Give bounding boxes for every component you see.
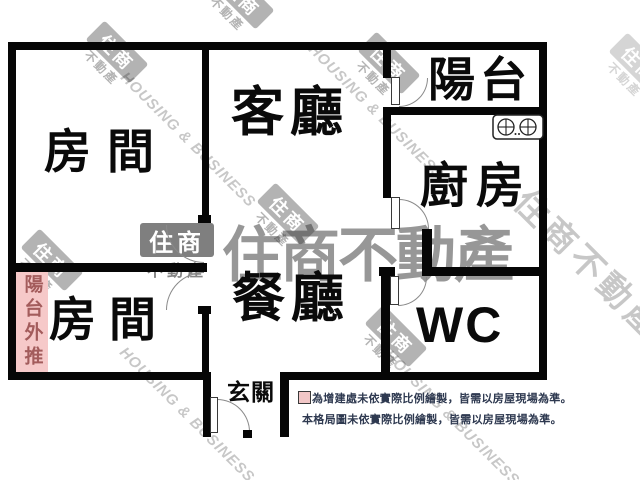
legend-annex-square [298, 391, 311, 404]
brand-logo-box: 住商 [257, 183, 320, 246]
wall-entry-right [280, 372, 289, 437]
brand-logo-subtext: 不動產 [597, 52, 640, 108]
note-layout: 本格局圖未依實際比例繪製，皆需以房屋現場為準。 [302, 411, 562, 427]
wall-outer-right [539, 42, 547, 380]
room-label-dining-room: 餐廳 [232, 272, 350, 325]
room-label-living-room: 客廳 [231, 86, 349, 139]
room-label-bedroom-top: 房間 [44, 128, 170, 175]
wall-outer-left [8, 42, 16, 380]
wall-outer-bottom-right [280, 372, 547, 380]
balcony-extension-strip: 陽台外推 [16, 272, 48, 372]
brand-logo-box: 住商 [609, 33, 640, 96]
brand-diamond-watermark: 住商 不動產 [200, 0, 275, 41]
wall-living-kitchen [383, 107, 391, 198]
room-label-entry: 玄關 [227, 381, 275, 404]
brand-logo-subtext: 不動產 [245, 202, 301, 258]
brand-logo-box: 住商 [86, 21, 149, 84]
brand-diamond-watermark: 住商 不動產 [245, 183, 320, 258]
wall-wc-top-right [428, 267, 547, 276]
wall-outer-bottom-left [8, 372, 211, 380]
door-leaf-kitchen [391, 197, 400, 229]
door-arc-balcony [399, 78, 428, 107]
door-jamb-entry [243, 430, 252, 438]
wall-bedroom2-dining [202, 310, 209, 380]
brand-diamond-watermark: 住商 不動產 [74, 21, 149, 96]
floorplan-canvas: 住商 不動產 住商不動產 住商 不動產 住商 不動產 住商 不動產 住商 不動產… [0, 0, 640, 480]
wall-bedroom1-living [202, 42, 209, 215]
door-jamb-bedroom1 [198, 215, 211, 223]
wall-outer-top [8, 42, 547, 50]
door-leaf-balcony [391, 77, 400, 105]
door-arc-bedroom1 [166, 225, 204, 263]
stove-icon [492, 114, 544, 140]
room-label-wc: WC [416, 300, 503, 350]
wall-between-bedrooms [8, 263, 207, 272]
brand-logo-subtext: 不動產 [200, 0, 256, 41]
note-annex: 為增建處未依實際比例繪製，皆需以房屋現場為準。 [312, 390, 572, 406]
wall-wc-left [381, 267, 390, 380]
room-label-bedroom-bottom: 房間 [49, 296, 169, 343]
door-leaf-entry [210, 397, 218, 433]
door-arc-bedroom2 [166, 272, 204, 310]
door-leaf-wc [390, 276, 399, 305]
room-label-kitchen: 廚房 [420, 163, 532, 211]
wall-living-balcony-upper [383, 42, 391, 78]
room-label-balcony: 陽台 [428, 56, 532, 103]
brand-diamond-watermark: 住商 不動產 [597, 33, 640, 108]
brand-logo-box: 住商 [212, 0, 275, 29]
balcony-extension-label: 陽台外推 [23, 274, 42, 370]
